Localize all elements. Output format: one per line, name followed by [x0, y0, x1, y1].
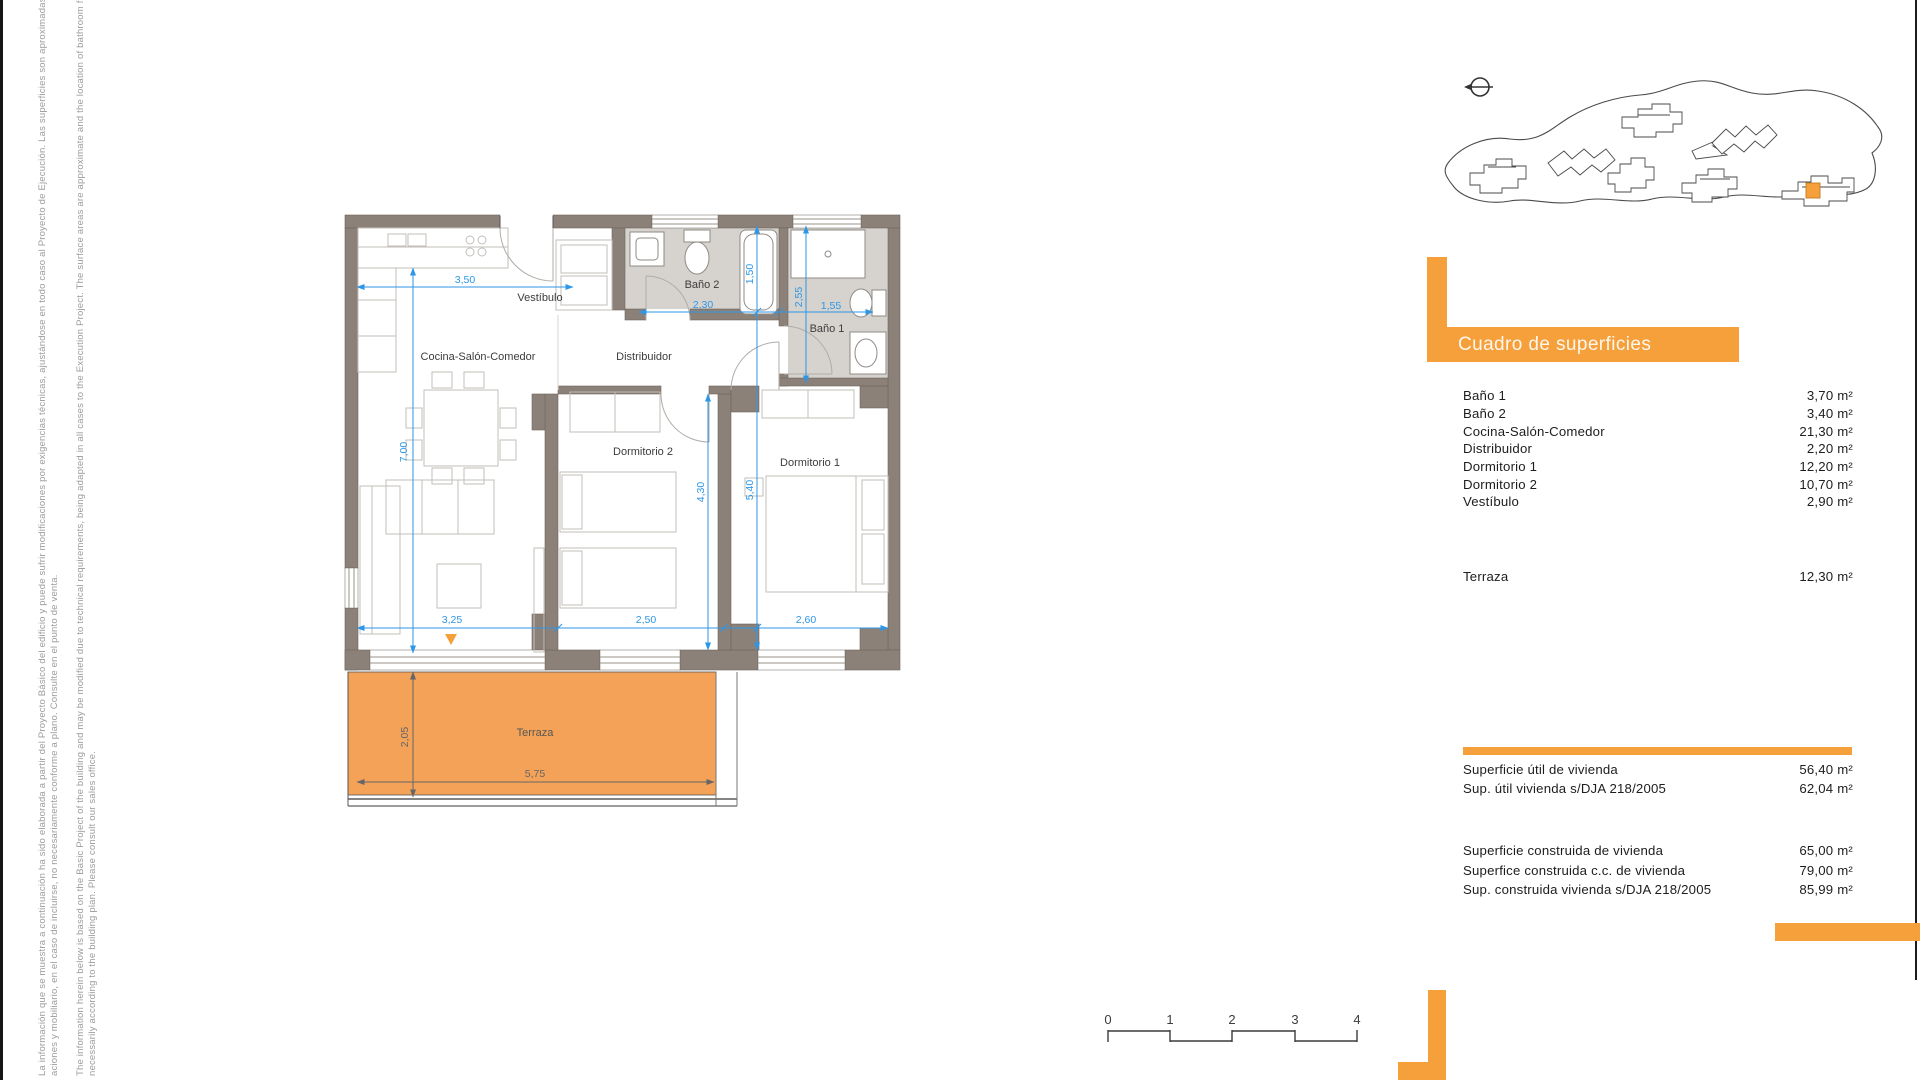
row-value: 10,70 m²	[1799, 477, 1853, 492]
accent-l-vbar-bottom	[1428, 990, 1446, 1080]
room-label-vestibulo: Vestíbulo	[517, 292, 562, 304]
dim-430: 4,30	[695, 482, 707, 503]
row-label: Superficie construida de vivienda	[1463, 843, 1663, 858]
room-label-cocina: Cocina-Salón-Comedor	[421, 351, 536, 363]
dim-250: 2,50	[636, 614, 657, 626]
table-row: Sup. útil vivienda s/DJA 218/2005 62,04 …	[1463, 779, 1853, 798]
row-label: Sup. útil vivienda s/DJA 218/2005	[1463, 781, 1666, 796]
row-label: Superfice construida c.c. de vivienda	[1463, 863, 1685, 878]
dim-700: 7,00	[398, 442, 410, 463]
accent-divider-bar	[1463, 747, 1852, 755]
table-row: Dormitorio 1 12,20 m²	[1463, 458, 1853, 476]
table-row: Cocina-Salón-Comedor 21,30 m²	[1463, 422, 1853, 440]
table-row: Baño 2 3,40 m²	[1463, 405, 1853, 423]
table-row: Superficie útil de vivienda 56,40 m²	[1463, 760, 1853, 779]
dim-155: 1,55	[821, 300, 842, 312]
row-label: Baño 2	[1463, 406, 1506, 421]
useful-surface-table: Superficie útil de vivienda 56,40 m² Sup…	[1463, 760, 1853, 798]
table-row: Vestíbulo 2,90 m²	[1463, 493, 1853, 511]
floor-plan-svg: 3,50 7,00 2,30 1,50 2,55 1,55 5,40 4,30 …	[343, 212, 905, 812]
north-arrow-icon	[1464, 78, 1493, 96]
scale-label-0: 0	[1104, 1012, 1111, 1027]
dim-230: 2,30	[693, 299, 714, 311]
row-value: 79,00 m²	[1799, 863, 1853, 878]
table-row: Superficie construida de vivienda 65,00 …	[1463, 841, 1853, 861]
site-plan-svg	[1430, 55, 1895, 215]
table-row: Baño 1 3,70 m²	[1463, 387, 1853, 405]
scale-bar-labels: 0 1 2 3 4	[1104, 1012, 1360, 1027]
terrace-surface-row: Terraza 12,30 m²	[1463, 568, 1853, 586]
scale-label-3: 3	[1291, 1012, 1298, 1027]
row-label: Vestíbulo	[1463, 494, 1519, 509]
table-row: Sup. construida vivienda s/DJA 218/2005 …	[1463, 880, 1853, 900]
dim-325: 3,25	[442, 614, 463, 626]
room-label-bano1: Baño 1	[810, 323, 845, 335]
disclaimer-es-line1: La información que se muestra a continua…	[37, 0, 48, 1076]
row-label: Sup. construida vivienda s/DJA 218/2005	[1463, 882, 1711, 897]
scale-label-2: 2	[1228, 1012, 1235, 1027]
surfaces-table-title: Cuadro de superficies	[1447, 327, 1739, 362]
dim-350: 3,50	[455, 274, 476, 286]
row-value: 2,90 m²	[1807, 494, 1853, 509]
scale-bar-svg: 0 1 2 3 4	[1095, 1004, 1375, 1050]
row-label: Baño 1	[1463, 388, 1506, 403]
row-value: 12,30 m²	[1799, 569, 1853, 584]
page-left-border	[0, 0, 3, 1080]
accent-l-foot-bottom	[1398, 1062, 1428, 1080]
building-clusters	[1470, 104, 1854, 206]
dim-540: 5,40	[744, 480, 756, 501]
row-label: Cocina-Salón-Comedor	[1463, 424, 1605, 439]
entry-marker-triangle	[445, 634, 457, 645]
accent-vbar-top	[1427, 257, 1447, 362]
scale-label-1: 1	[1166, 1012, 1173, 1027]
room-label-terraza: Terraza	[517, 727, 555, 739]
scale-bar-rule	[1108, 1030, 1357, 1042]
scale-label-4: 4	[1353, 1012, 1360, 1027]
table-row: Distribuidor 2,20 m²	[1463, 440, 1853, 458]
floor-plan-sheet: La información que se muestra a continua…	[0, 0, 1920, 1080]
row-label: Terraza	[1463, 569, 1508, 584]
row-value: 12,20 m²	[1799, 459, 1853, 474]
room-label-dorm1: Dormitorio 1	[780, 457, 840, 469]
room-surfaces-table: Baño 1 3,70 m² Baño 2 3,40 m² Cocina-Sal…	[1463, 387, 1853, 511]
dim-150: 1,50	[744, 264, 756, 285]
row-label: Distribuidor	[1463, 441, 1532, 456]
dim-255: 2,55	[793, 287, 805, 308]
row-value: 62,04 m²	[1799, 781, 1853, 796]
row-label: Superficie útil de vivienda	[1463, 762, 1618, 777]
row-value: 85,99 m²	[1799, 882, 1853, 897]
row-value: 3,40 m²	[1807, 406, 1853, 421]
built-surface-table: Superficie construida de vivienda 65,00 …	[1463, 841, 1853, 900]
row-label: Dormitorio 2	[1463, 477, 1537, 492]
disclaimer-en-line1: The information herein below is based on…	[75, 0, 86, 1076]
row-label: Dormitorio 1	[1463, 459, 1537, 474]
row-value: 65,00 m²	[1799, 843, 1853, 858]
disclaimer-es-line2: aciones y mobiliario, en el caso de incl…	[49, 574, 60, 1076]
table-row: Dormitorio 2 10,70 m²	[1463, 475, 1853, 493]
room-label-distribuidor: Distribuidor	[616, 351, 672, 363]
disclaimer-en-line2: necessarily according to the building pl…	[87, 751, 98, 1076]
dim-575: 5,75	[525, 768, 546, 780]
surfaces-table-header: Cuadro de superficies	[1447, 327, 1739, 362]
dim-260: 2,60	[796, 614, 817, 626]
page-right-border	[1915, 0, 1917, 980]
row-value: 2,20 m²	[1807, 441, 1853, 456]
row-value: 21,30 m²	[1799, 424, 1853, 439]
accent-bar-bottom-right	[1775, 923, 1920, 941]
room-label-bano2: Baño 2	[685, 279, 720, 291]
room-label-dorm2: Dormitorio 2	[613, 446, 673, 458]
table-row: Superfice construida c.c. de vivienda 79…	[1463, 861, 1853, 881]
dim-205: 2,05	[399, 727, 411, 748]
highlighted-unit	[1806, 183, 1820, 198]
row-value: 56,40 m²	[1799, 762, 1853, 777]
row-value: 3,70 m²	[1807, 388, 1853, 403]
